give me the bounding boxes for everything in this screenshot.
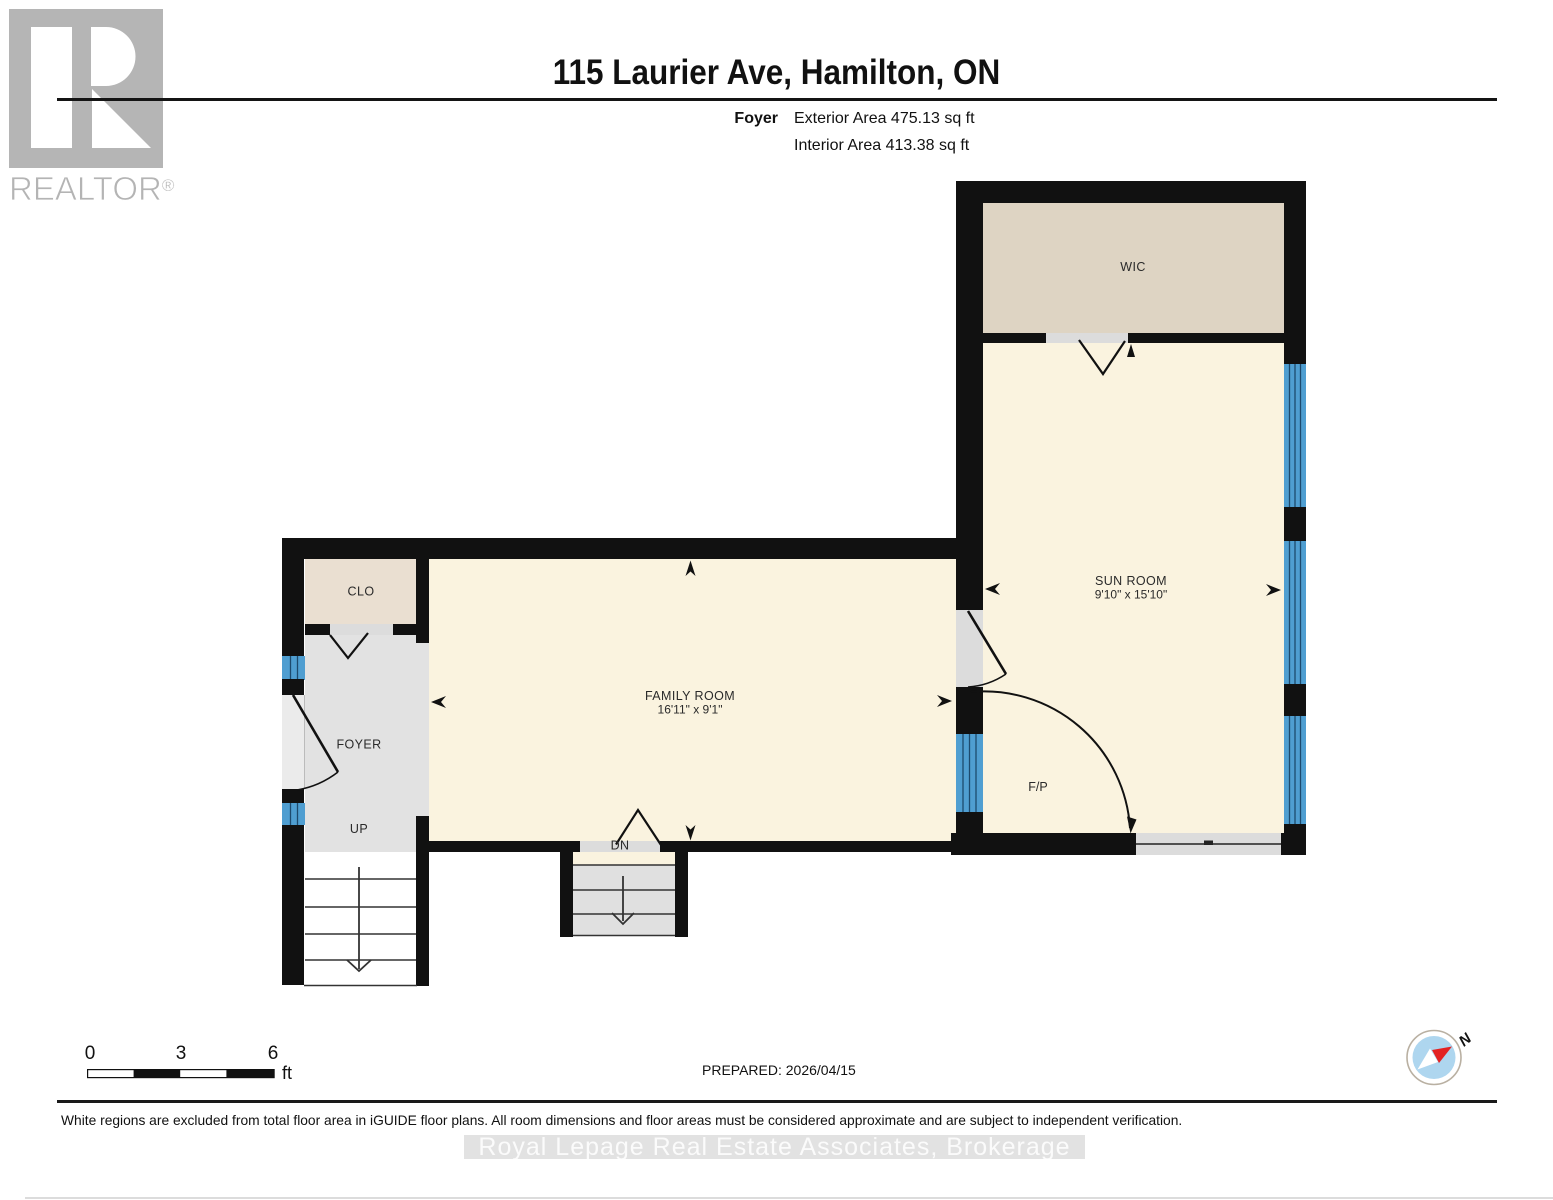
svg-text:FOYER: FOYER <box>336 738 381 752</box>
svg-text:WIC: WIC <box>1120 260 1146 274</box>
svg-text:UP: UP <box>350 822 368 836</box>
svg-text:F/P: F/P <box>1028 780 1047 794</box>
svg-text:16'11" x 9'1": 16'11" x 9'1" <box>658 703 723 717</box>
svg-text:FAMILY ROOM: FAMILY ROOM <box>645 689 735 703</box>
svg-text:DN: DN <box>611 839 630 853</box>
svg-text:SUN ROOM: SUN ROOM <box>1095 574 1167 588</box>
svg-text:CLO: CLO <box>348 585 375 599</box>
svg-text:9'10" x 15'10": 9'10" x 15'10" <box>1095 588 1168 602</box>
